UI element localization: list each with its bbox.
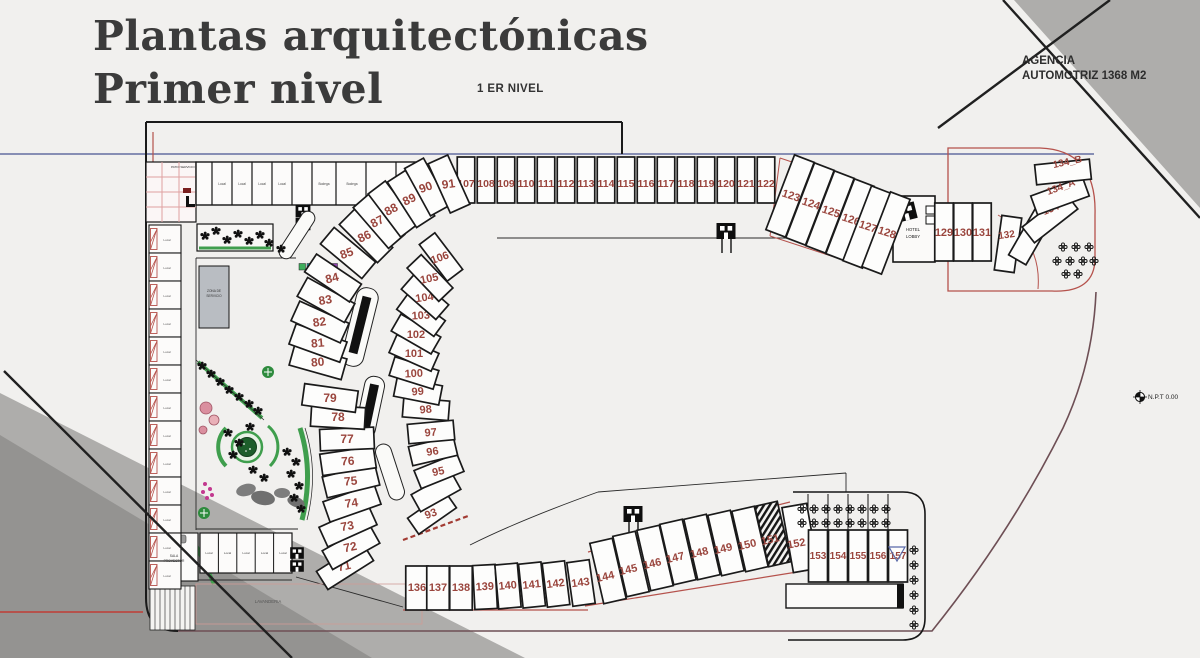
svg-text:79: 79: [323, 391, 337, 405]
svg-text:143: 143: [571, 576, 591, 590]
svg-text:155: 155: [850, 551, 867, 562]
svg-text:100: 100: [404, 368, 423, 381]
svg-text:139: 139: [475, 581, 494, 594]
parking-stall-120: 120: [717, 157, 735, 203]
parking-stall-142: 142: [542, 561, 570, 607]
svg-text:138: 138: [452, 582, 470, 594]
svg-text:Bodega: Bodega: [347, 182, 358, 186]
svg-text:153: 153: [810, 551, 827, 562]
svg-text:Local: Local: [242, 551, 250, 555]
svg-text:83: 83: [318, 292, 334, 308]
svg-text:Local: Local: [258, 182, 266, 186]
service-desk: [183, 188, 191, 193]
flower-icon: [1090, 257, 1098, 265]
flower-icon: [1053, 257, 1061, 265]
flower-icon: [810, 505, 818, 513]
flower-icon: [1072, 243, 1080, 251]
svg-text:Local: Local: [224, 551, 232, 555]
flower-icon: [1066, 257, 1074, 265]
svg-text:Local: Local: [163, 350, 171, 354]
parking-stall-119: 119: [697, 157, 715, 203]
svg-text:101: 101: [405, 348, 423, 360]
svg-text:75: 75: [343, 473, 358, 488]
svg-text:Local: Local: [163, 266, 171, 270]
svg-text:Local: Local: [279, 551, 287, 555]
flower-icon: [858, 505, 866, 513]
svg-text:Local: Local: [218, 182, 226, 186]
flower-icon: [822, 505, 830, 513]
strip-room: Local: [149, 449, 181, 477]
svg-text:76: 76: [341, 454, 355, 469]
sala-label-1: SALA: [170, 554, 179, 558]
strip-room: Local: [149, 253, 181, 281]
svg-text:154: 154: [830, 551, 847, 562]
flower-icon: [834, 505, 842, 513]
agency-label: AGENCIA AUTOMOTRIZ 1368 M2: [1022, 54, 1146, 84]
parking-stall-143: 143: [567, 560, 595, 607]
strip-room: Local: [149, 337, 181, 365]
aisle-elevators: [624, 223, 736, 541]
level-label: 1 ER NIVEL: [477, 83, 544, 95]
parking-stall-113: 113: [577, 157, 595, 203]
strip-room: Local: [149, 281, 181, 309]
flower-icon: [910, 621, 918, 629]
page-title-line1: Plantas arquitectónicas: [93, 10, 649, 63]
tree-icon: [291, 458, 300, 466]
svg-text:102: 102: [407, 329, 425, 341]
parking-stall-111: 111: [537, 157, 555, 203]
svg-text:Local: Local: [278, 182, 286, 186]
laundry-label: LAVANDERIA: [255, 599, 282, 604]
strip-room: Local: [149, 393, 181, 421]
parking-stall-137: 137: [427, 566, 450, 610]
flower-icon: [910, 546, 918, 554]
npt-label: N.P.T 0.00: [1148, 394, 1178, 401]
svg-text:130: 130: [954, 227, 972, 239]
strip-room: Local: [149, 561, 181, 589]
ramp-strip: [150, 586, 195, 630]
parking-stall-130: 130: [954, 203, 973, 261]
flower-icon: [870, 519, 878, 527]
hotel-label-1: HOTEL: [906, 227, 921, 232]
tree-icon: [294, 482, 303, 490]
parking-stall-115: 115: [617, 157, 635, 203]
svg-text:82: 82: [312, 314, 327, 330]
svg-text:97: 97: [424, 427, 437, 440]
flower-icon: [822, 519, 830, 527]
patio-label: PATIO SERVICIO: [171, 165, 195, 169]
parking-stall-156: 156: [869, 530, 888, 582]
svg-text:Local: Local: [205, 551, 213, 555]
parking-stall-122: 122: [757, 157, 775, 203]
parking-stall-134_B: 134_B: [1035, 154, 1092, 185]
svg-text:Local: Local: [261, 551, 269, 555]
svg-text:136: 136: [408, 582, 426, 594]
svg-text:116: 116: [638, 178, 655, 190]
parking-stall-131: 131: [973, 203, 992, 261]
strip-room: Local: [149, 421, 181, 449]
svg-text:110: 110: [518, 178, 535, 190]
svg-text:Local: Local: [163, 294, 171, 298]
strip-room: Local: [149, 225, 181, 253]
svg-text:121: 121: [737, 178, 755, 190]
flower-icon: [1074, 270, 1082, 278]
svg-text:142: 142: [546, 577, 566, 591]
page-title: Plantas arquitectónicas Primer nivel: [93, 10, 649, 116]
svg-text:115: 115: [618, 178, 635, 190]
parking-stall-79: 79: [302, 384, 358, 413]
strip-room: Local: [149, 365, 181, 393]
parking-stall-155: 155: [849, 530, 868, 582]
svg-text:73: 73: [340, 518, 356, 534]
flower-icon: [910, 591, 918, 599]
svg-text:119: 119: [698, 178, 715, 190]
svg-text:78: 78: [331, 410, 345, 424]
svg-text:112: 112: [558, 178, 575, 190]
parking-stall-121: 121: [737, 157, 755, 203]
agency-label-line1: AGENCIA: [1022, 54, 1146, 69]
strip-room: Local: [149, 309, 181, 337]
parking-stall-138: 138: [450, 566, 473, 610]
svg-text:108: 108: [477, 178, 495, 190]
svg-text:131: 131: [973, 227, 991, 239]
svg-text:81: 81: [310, 335, 325, 350]
svg-text:99: 99: [411, 386, 424, 399]
tree-icon: [259, 474, 268, 482]
tree-icon: [248, 466, 257, 474]
agency-label-line2: AUTOMOTRIZ 1368 M2: [1022, 69, 1146, 84]
tree-icon: [282, 448, 291, 456]
svg-text:114: 114: [598, 178, 615, 190]
sala-label-2: PROYECTOR: [164, 559, 185, 563]
flower-icon: [910, 576, 918, 584]
parking-stall-112: 112: [557, 157, 575, 203]
parking-stall-77: 77: [320, 427, 375, 451]
parking-stall-129: 129: [935, 203, 954, 261]
flower-icon: [846, 519, 854, 527]
svg-text:96: 96: [426, 445, 440, 459]
flower-icon: [882, 519, 890, 527]
svg-text:Local: Local: [163, 574, 171, 578]
parking-stall-110: 110: [517, 157, 535, 203]
tree-icon: [245, 423, 254, 431]
flower-icon: [882, 505, 890, 513]
svg-text:77: 77: [340, 432, 354, 446]
svg-text:156: 156: [870, 551, 887, 562]
svg-text:Local: Local: [163, 434, 171, 438]
flower-icon: [858, 519, 866, 527]
svg-text:91: 91: [441, 176, 456, 192]
svg-text:74: 74: [344, 495, 359, 511]
flower-icon: [910, 561, 918, 569]
parking-stall-118: 118: [677, 157, 695, 203]
zona-label-2: SERVICIO: [206, 294, 222, 298]
strip-room: Local: [149, 477, 181, 505]
svg-text:Bodega: Bodega: [319, 182, 330, 186]
parking-stall-157: 157: [889, 530, 908, 582]
svg-text:98: 98: [419, 404, 432, 417]
svg-text:Local: Local: [163, 490, 171, 494]
architectural-plan-page: 1071081091101111121131141151161171181191…: [0, 0, 1200, 658]
page-title-line2: Primer nivel: [93, 63, 649, 116]
parking-stall-97: 97: [407, 420, 455, 444]
parking-stall-116: 116: [637, 157, 655, 203]
parking-stall-141: 141: [519, 562, 546, 608]
parking-stall-153: 153: [809, 530, 828, 582]
svg-text:120: 120: [717, 178, 735, 190]
flower-icon: [1079, 257, 1087, 265]
svg-text:137: 137: [429, 582, 447, 594]
svg-text:141: 141: [522, 578, 542, 592]
svg-text:Local: Local: [163, 546, 171, 550]
svg-text:Local: Local: [163, 378, 171, 382]
flower-icon: [1059, 243, 1067, 251]
svg-text:Local: Local: [163, 406, 171, 410]
parking-stall-108: 108: [477, 157, 495, 203]
parking-stall-136: 136: [406, 566, 429, 610]
parking-stall-117: 117: [657, 157, 675, 203]
parking-stall-114: 114: [597, 157, 615, 203]
flower-icon: [1085, 243, 1093, 251]
svg-text:122: 122: [757, 178, 775, 190]
svg-text:140: 140: [498, 579, 517, 593]
svg-text:Local: Local: [163, 238, 171, 242]
parking-stall-140: 140: [495, 563, 521, 609]
zona-label-1: ZONA DE: [207, 289, 221, 293]
svg-text:111: 111: [538, 178, 555, 190]
flower-icon: [910, 606, 918, 614]
flower-icon: [870, 505, 878, 513]
svg-text:Local: Local: [163, 322, 171, 326]
hotel-label-2: LOBBY: [906, 234, 920, 239]
svg-text:113: 113: [578, 178, 595, 190]
flower-icon: [846, 505, 854, 513]
flower-icon: [1062, 270, 1070, 278]
svg-text:Local: Local: [163, 518, 171, 522]
svg-text:Local: Local: [163, 462, 171, 466]
svg-text:109: 109: [497, 178, 515, 190]
svg-text:129: 129: [935, 227, 953, 239]
parking-stall-154: 154: [829, 530, 848, 582]
parking-stall-139: 139: [473, 564, 498, 609]
parking-stall-109: 109: [497, 157, 515, 203]
tree-icon: [286, 470, 295, 478]
svg-text:Local: Local: [238, 182, 246, 186]
svg-text:118: 118: [678, 178, 695, 190]
flower-icon: [834, 519, 842, 527]
svg-text:95: 95: [431, 465, 445, 479]
crosshair-icon: [1133, 390, 1147, 404]
svg-text:117: 117: [658, 178, 675, 190]
